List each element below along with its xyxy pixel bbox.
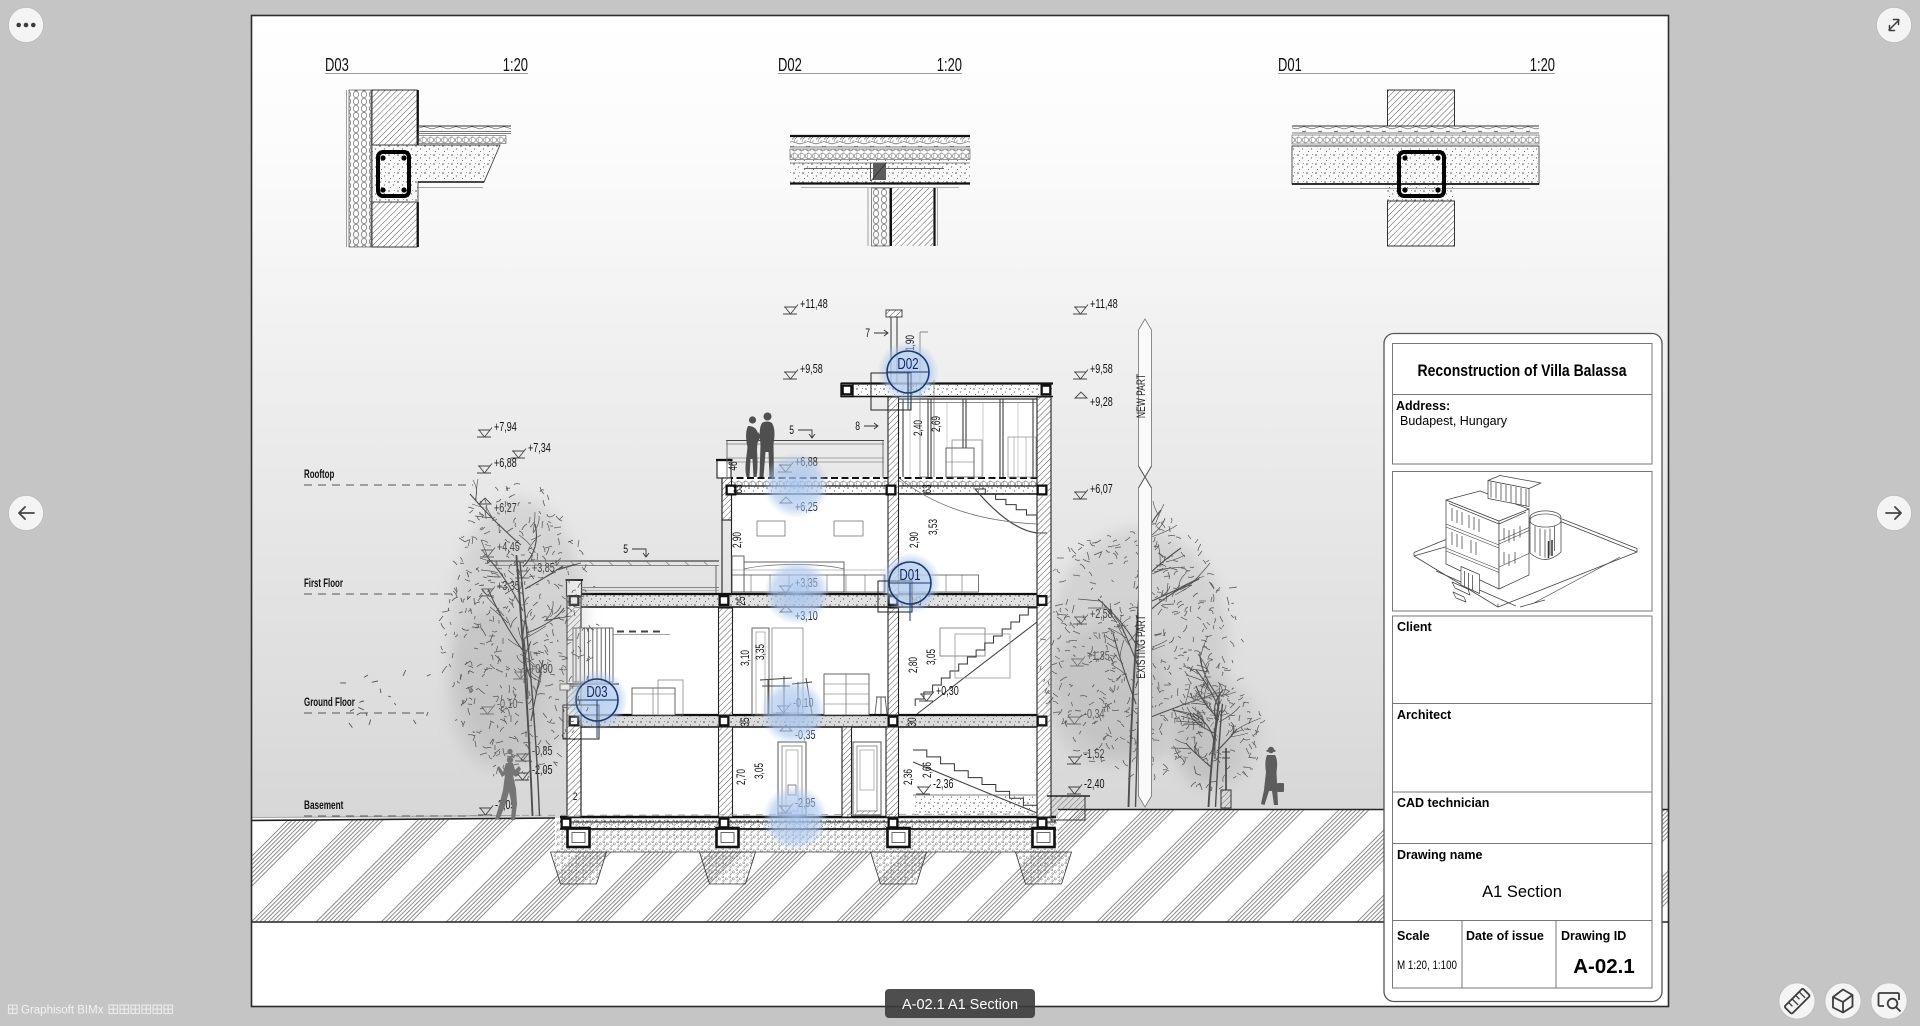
svg-text:2,90: 2,90 (909, 532, 921, 548)
svg-text:63: 63 (733, 484, 745, 493)
svg-text:3,35: 3,35 (755, 644, 767, 660)
svg-text:1:20: 1:20 (937, 55, 962, 75)
svg-text:D02: D02 (778, 55, 802, 75)
svg-text:+11,48: +11,48 (1090, 297, 1118, 311)
svg-text:3,53: 3,53 (928, 519, 940, 535)
svg-text:2,66: 2,66 (922, 762, 934, 778)
svg-text:2,90: 2,90 (732, 532, 744, 548)
svg-text:D01: D01 (1278, 55, 1302, 75)
svg-text:D03: D03 (325, 55, 349, 75)
svg-text:1:20: 1:20 (1530, 55, 1555, 75)
svg-text:+7,34: +7,34 (528, 441, 551, 455)
svg-text:2,69: 2,69 (931, 416, 943, 432)
svg-text:3,05: 3,05 (926, 649, 938, 665)
svg-text:+9,28: +9,28 (1090, 395, 1113, 409)
svg-text:2,70: 2,70 (736, 769, 748, 785)
svg-text:25: 25 (736, 596, 748, 605)
svg-text:Client: Client (1397, 620, 1433, 634)
svg-text:A1 Section: A1 Section (1482, 883, 1562, 901)
svg-text:CAD technician: CAD technician (1397, 796, 1489, 810)
svg-text:-2,36: -2,36 (933, 777, 954, 791)
svg-text:Drawing ID: Drawing ID (1561, 929, 1626, 943)
svg-text:2,80: 2,80 (908, 657, 920, 673)
svg-text:5: 5 (789, 423, 794, 437)
svg-text:8: 8 (855, 419, 860, 433)
svg-text:M 1:20, 1:100: M 1:20, 1:100 (1397, 958, 1457, 972)
svg-text:A-02.1 A1 Section: A-02.1 A1 Section (902, 997, 1018, 1013)
svg-text:Budapest, Hungary: Budapest, Hungary (1400, 414, 1508, 428)
svg-text:Date of issue: Date of issue (1466, 929, 1544, 943)
svg-text:2: 2 (573, 791, 577, 803)
svg-text:5: 5 (623, 542, 628, 556)
svg-text:D02: D02 (897, 356, 918, 373)
svg-text:46: 46 (728, 461, 740, 470)
svg-text:Ground Floor: Ground Floor (304, 695, 355, 709)
svg-text:Architect: Architect (1397, 708, 1452, 722)
svg-text:3,05: 3,05 (754, 763, 766, 779)
svg-text:+0,30: +0,30 (936, 684, 959, 698)
svg-text:NEW PART: NEW PART (1136, 374, 1148, 418)
svg-text:Address:: Address: (1396, 399, 1450, 413)
svg-text:+6,88: +6,88 (494, 456, 517, 470)
svg-text:D03: D03 (586, 684, 607, 701)
svg-text:Reconstruction of Villa Balass: Reconstruction of Villa Balassa (1418, 362, 1628, 380)
svg-text:35: 35 (740, 717, 752, 726)
svg-text:7: 7 (865, 326, 870, 340)
svg-text:Rooftop: Rooftop (304, 467, 334, 481)
svg-text:63: 63 (922, 484, 934, 493)
svg-text:Basement: Basement (304, 798, 343, 812)
svg-text:D01: D01 (899, 567, 920, 584)
svg-text:Graphisoft BIMx: Graphisoft BIMx (21, 1005, 104, 1017)
svg-text:-2,05: -2,05 (532, 763, 553, 777)
svg-text:A-02.1: A-02.1 (1573, 955, 1635, 978)
svg-text:3,10: 3,10 (740, 650, 752, 666)
svg-text:2,40: 2,40 (913, 420, 925, 436)
svg-text:1:20: 1:20 (503, 55, 528, 75)
svg-text:-2,40: -2,40 (1084, 777, 1105, 791)
svg-text:EXISTING PART: EXISTING PART (1136, 615, 1148, 679)
svg-text:2,36: 2,36 (903, 769, 915, 785)
svg-text:+6,07: +6,07 (1090, 482, 1113, 496)
svg-text:+11,48: +11,48 (800, 297, 828, 311)
svg-text:+7,94: +7,94 (494, 420, 517, 434)
svg-text:Scale: Scale (1397, 929, 1430, 943)
svg-text:+9,58: +9,58 (1090, 362, 1113, 376)
svg-text:First Floor: First Floor (304, 576, 343, 590)
svg-text:30: 30 (907, 717, 919, 726)
svg-text:+9,58: +9,58 (800, 362, 823, 376)
svg-text:Drawing name: Drawing name (1397, 848, 1482, 862)
